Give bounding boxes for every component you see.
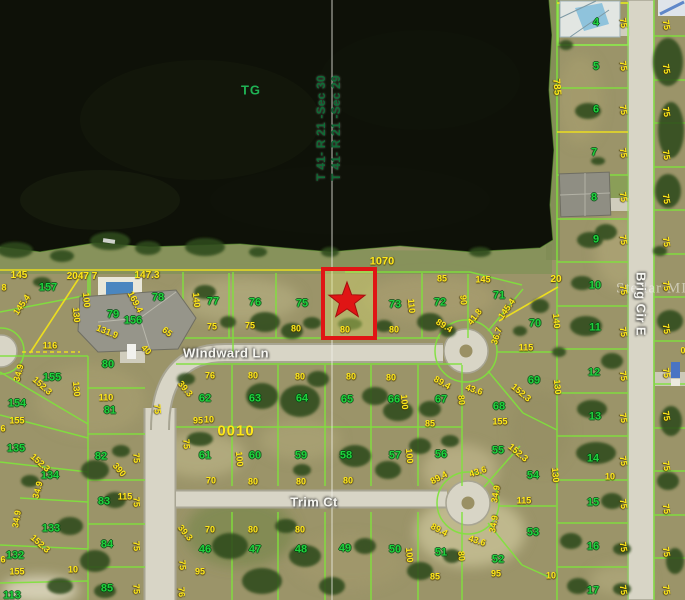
parcel-number-label: 72 xyxy=(434,298,446,309)
parcel-number-label: 53 xyxy=(527,528,539,539)
dimension-label: 36.7 xyxy=(490,326,504,345)
dimension-label: 75 xyxy=(618,104,629,115)
dimension-label: 116 xyxy=(43,342,58,351)
parcel-number-label: 55 xyxy=(492,446,504,457)
dimension-label: 10 xyxy=(68,566,78,575)
parcel-number-label: 54 xyxy=(527,471,539,482)
parcel-number-label: 57 xyxy=(389,451,401,462)
dimension-label: 152.3 xyxy=(506,442,529,463)
dimension-label: 110 xyxy=(99,394,114,403)
parcel-number-label: 61 xyxy=(199,451,211,462)
dimension-label: 80 xyxy=(295,526,305,535)
dimension-label: 80 xyxy=(248,526,258,535)
parcel-number-label: 13 xyxy=(589,412,601,423)
dimension-label: 75 xyxy=(618,191,629,202)
parcel-number-label: 70 xyxy=(529,319,541,330)
parcel-number-label: 17 xyxy=(587,586,599,597)
parcel-number-label: 56 xyxy=(435,450,447,461)
dimension-label: 145 xyxy=(475,276,490,285)
parcel-number-label: 9 xyxy=(593,235,599,246)
parcel-number-label: 75 xyxy=(296,299,308,310)
dimension-label: 75 xyxy=(618,498,629,509)
dimension-label: 130 xyxy=(71,381,81,397)
dimension-label: 145.4 xyxy=(12,293,32,317)
dimension-label: 155 xyxy=(9,417,24,426)
dimension-label: 140 xyxy=(551,313,561,329)
dimension-label: 75 xyxy=(661,323,672,334)
parcel-number-label: 113 xyxy=(3,591,21,600)
dimension-label: 75 xyxy=(177,560,187,571)
dimension-label: 34.9 xyxy=(31,480,44,499)
dimension-label: 145 xyxy=(11,271,28,281)
section-township-label: T 41- R 21 -Sec 30 xyxy=(315,75,327,181)
dimension-label: 2047 7 xyxy=(67,272,98,282)
dimension-label: 75 xyxy=(618,541,629,552)
dimension-label: 75 xyxy=(661,63,672,74)
dimension-label: 75 xyxy=(661,460,672,471)
dimension-label: 75 xyxy=(661,280,672,291)
dimension-label: 75 xyxy=(618,147,629,158)
parcel-number-label: 156 xyxy=(124,316,142,327)
dimension-label: 75 xyxy=(618,326,629,337)
dimension-label: 75 xyxy=(618,455,629,466)
parcel-number-label: 77 xyxy=(207,297,219,308)
dimension-label: 75 xyxy=(618,584,629,595)
dimension-label: 43.6 xyxy=(464,383,483,397)
dimension-label: 10 xyxy=(204,416,214,425)
parcel-number-label: 52 xyxy=(492,555,504,566)
dimension-label: 89.4 xyxy=(434,318,454,335)
dimension-label: 80 xyxy=(340,326,350,335)
dimension-label: 75 xyxy=(618,17,629,28)
parcel-number-label: 49 xyxy=(339,544,351,555)
dimension-label: 75 xyxy=(131,541,141,552)
parcel-number-label: 157 xyxy=(39,283,57,294)
parcel-number-label: 58 xyxy=(340,451,352,462)
dimension-label: 140 xyxy=(191,292,201,308)
dimension-label: 75 xyxy=(152,404,162,415)
parcel-number-label: 67 xyxy=(435,395,447,406)
dimension-label: 41.8 xyxy=(466,307,484,326)
parcel-number-label: 12 xyxy=(588,368,600,379)
map-labels: TG 0010 Stellar MLS 15715679787776757372… xyxy=(0,0,685,600)
dimension-label: 130 xyxy=(71,307,81,323)
dimension-label: 75 xyxy=(661,193,672,204)
dimension-label: 76 xyxy=(205,372,215,381)
dimension-label: 100 xyxy=(81,292,91,308)
parcel-number-label: 133 xyxy=(42,524,60,535)
dimension-label: 75 xyxy=(618,234,629,245)
dimension-label: 80 xyxy=(296,478,306,487)
dimension-label: 80 xyxy=(343,477,353,486)
dimension-label: 39.3 xyxy=(176,379,194,398)
dimension-label: 80 xyxy=(295,373,305,382)
dimension-label: 155 xyxy=(492,418,507,427)
parcel-number-label: 65 xyxy=(341,395,353,406)
dimension-label: 95 xyxy=(491,570,501,579)
parcel-number-label: 48 xyxy=(295,545,307,556)
dimension-label: 155 xyxy=(9,568,24,577)
dimension-label: 85 xyxy=(430,573,440,582)
dimension-label: 75 xyxy=(661,149,672,160)
dimension-label: 43.6 xyxy=(468,465,487,479)
dimension-label: 43.6 xyxy=(467,534,486,548)
parcel-number-label: 11 xyxy=(589,323,601,334)
dimension-label: 34.9 xyxy=(488,515,500,534)
dimension-label: 65 xyxy=(160,325,173,338)
dimension-label: 85 xyxy=(437,275,447,284)
dimension-label: 34.9 xyxy=(12,363,25,382)
dimension-label: 100 xyxy=(404,448,414,464)
waterbody-label: TG xyxy=(241,83,261,98)
dimension-label: 75 xyxy=(207,323,217,332)
dimension-label: 76 xyxy=(176,587,186,598)
dimension-label: 40 xyxy=(139,343,152,356)
parcel-number-label: 60 xyxy=(249,451,261,462)
dimension-label: 20 xyxy=(550,275,561,285)
street-name-label: WIndward Ln xyxy=(183,347,269,360)
dimension-label: 80 xyxy=(389,326,399,335)
dimension-label: 95 xyxy=(193,417,203,426)
dimension-label: 1070 xyxy=(370,257,394,268)
parcel-number-label: 8 xyxy=(591,193,597,204)
dimension-label: 10 xyxy=(605,473,615,482)
dimension-label: 75 xyxy=(618,60,629,71)
parcel-number-label: 64 xyxy=(296,394,308,405)
parcel-number-label: 59 xyxy=(295,451,307,462)
dimension-label: 80 xyxy=(456,551,466,562)
parcel-number-label: 83 xyxy=(98,497,110,508)
dimension-label: 75 xyxy=(618,370,629,381)
dimension-label: 100 xyxy=(404,547,414,563)
dimension-label: 75 xyxy=(131,497,141,508)
dimension-label: 75 xyxy=(661,19,672,30)
parcel-number-label: 76 xyxy=(249,298,261,309)
dimension-label: 80 xyxy=(456,395,466,406)
dimension-label: 80 xyxy=(248,478,258,487)
parcel-number-label: 71 xyxy=(493,291,505,302)
dimension-label: 75 xyxy=(131,584,141,595)
parcel-number-label: 7 xyxy=(591,148,597,159)
parcel-number-label: 154 xyxy=(8,399,26,410)
parcel-number-label: 82 xyxy=(95,452,107,463)
dimension-label: 785 xyxy=(550,78,561,95)
dimension-label: 147.3 xyxy=(134,271,159,281)
parcel-number-label: 14 xyxy=(587,454,599,465)
parcel-number-label: 85 xyxy=(101,584,113,595)
dimension-label: 80 xyxy=(346,373,356,382)
dimension-label: 75 xyxy=(131,453,141,464)
parcel-number-label: 4 xyxy=(593,18,599,29)
dimension-label: 8 xyxy=(1,284,6,293)
dimension-label: 110 xyxy=(406,298,416,313)
dimension-label: 89.4 xyxy=(429,522,449,538)
dimension-label: 75 xyxy=(661,503,672,514)
dimension-label: 89.4 xyxy=(432,375,452,392)
dimension-label: 75 xyxy=(618,284,629,295)
parcel-number-label: 68 xyxy=(493,402,505,413)
parcel-number-label: 10 xyxy=(589,281,601,292)
dimension-label: 100 xyxy=(399,394,409,410)
dimension-label: 75 xyxy=(181,439,191,450)
dimension-label: 75 xyxy=(661,546,672,557)
parcel-number-label: 6 xyxy=(593,105,599,116)
dimension-label: 75 xyxy=(661,584,672,595)
parcel-number-label: 16 xyxy=(587,542,599,553)
dimension-label: 75 xyxy=(618,412,629,423)
parcel-number-label: 73 xyxy=(389,300,401,311)
parcel-number-label: 80 xyxy=(102,360,114,371)
parcel-number-label: 78 xyxy=(152,293,164,304)
dimension-label: 85 xyxy=(425,420,435,429)
dimension-label: 0 xyxy=(680,347,685,356)
parcel-number-label: 63 xyxy=(249,394,261,405)
dimension-label: 80 xyxy=(248,372,258,381)
dimension-label: 6 xyxy=(0,425,5,434)
dimension-label: 75 xyxy=(661,106,672,117)
dimension-label: 75 xyxy=(661,367,672,378)
parcel-number-label: 69 xyxy=(528,376,540,387)
parcel-number-label: 51 xyxy=(435,548,447,559)
dimension-label: 6 xyxy=(0,556,5,565)
block-number-label: 0010 xyxy=(217,423,254,440)
dimension-label: 75 xyxy=(245,322,255,331)
dimension-label: 115 xyxy=(519,344,534,353)
parcel-number-label: 50 xyxy=(389,545,401,556)
dimension-label: 130 xyxy=(550,467,560,483)
dimension-label: 90 xyxy=(458,295,468,306)
dimension-label: 130 xyxy=(552,379,562,395)
section-township-label: T 41- R 21 -Sec 29 xyxy=(330,75,342,181)
parcel-number-label: 47 xyxy=(249,545,261,556)
dimension-label: 10 xyxy=(546,572,556,581)
parcel-number-label: 84 xyxy=(101,540,113,551)
dimension-label: 80 xyxy=(386,374,396,383)
street-name-label: Brig Cir E xyxy=(635,272,648,336)
dimension-label: 75 xyxy=(661,410,672,421)
parcel-number-label: 62 xyxy=(199,394,211,405)
dimension-label: 152.3 xyxy=(29,533,52,555)
dimension-label: 131.9 xyxy=(95,324,119,341)
dimension-label: 169.4 xyxy=(126,290,145,314)
dimension-label: 34.9 xyxy=(11,510,23,529)
parcel-number-label: 15 xyxy=(587,498,599,509)
parcel-number-label: 79 xyxy=(107,310,119,321)
dimension-label: 75 xyxy=(661,236,672,247)
dimension-label: 80 xyxy=(291,325,301,334)
parcel-map: TG 0010 Stellar MLS 15715679787776757372… xyxy=(0,0,685,600)
dimension-label: 95 xyxy=(195,568,205,577)
dimension-label: 39.3 xyxy=(176,523,194,542)
dimension-label: 390 xyxy=(111,461,128,478)
parcel-number-label: 135 xyxy=(7,444,25,455)
dimension-label: 70 xyxy=(205,526,215,535)
dimension-label: 115 xyxy=(517,497,532,506)
parcel-number-label: 5 xyxy=(593,62,599,73)
parcel-number-label: 46 xyxy=(199,545,211,556)
parcel-number-label: 132 xyxy=(6,551,24,562)
dimension-label: 70 xyxy=(206,477,216,486)
dimension-label: 89.4 xyxy=(429,470,449,486)
dimension-label: 100 xyxy=(234,451,244,467)
parcel-number-label: 81 xyxy=(104,406,116,417)
street-name-label: Trim Ct xyxy=(290,496,338,509)
dimension-label: 34.9 xyxy=(490,485,502,504)
